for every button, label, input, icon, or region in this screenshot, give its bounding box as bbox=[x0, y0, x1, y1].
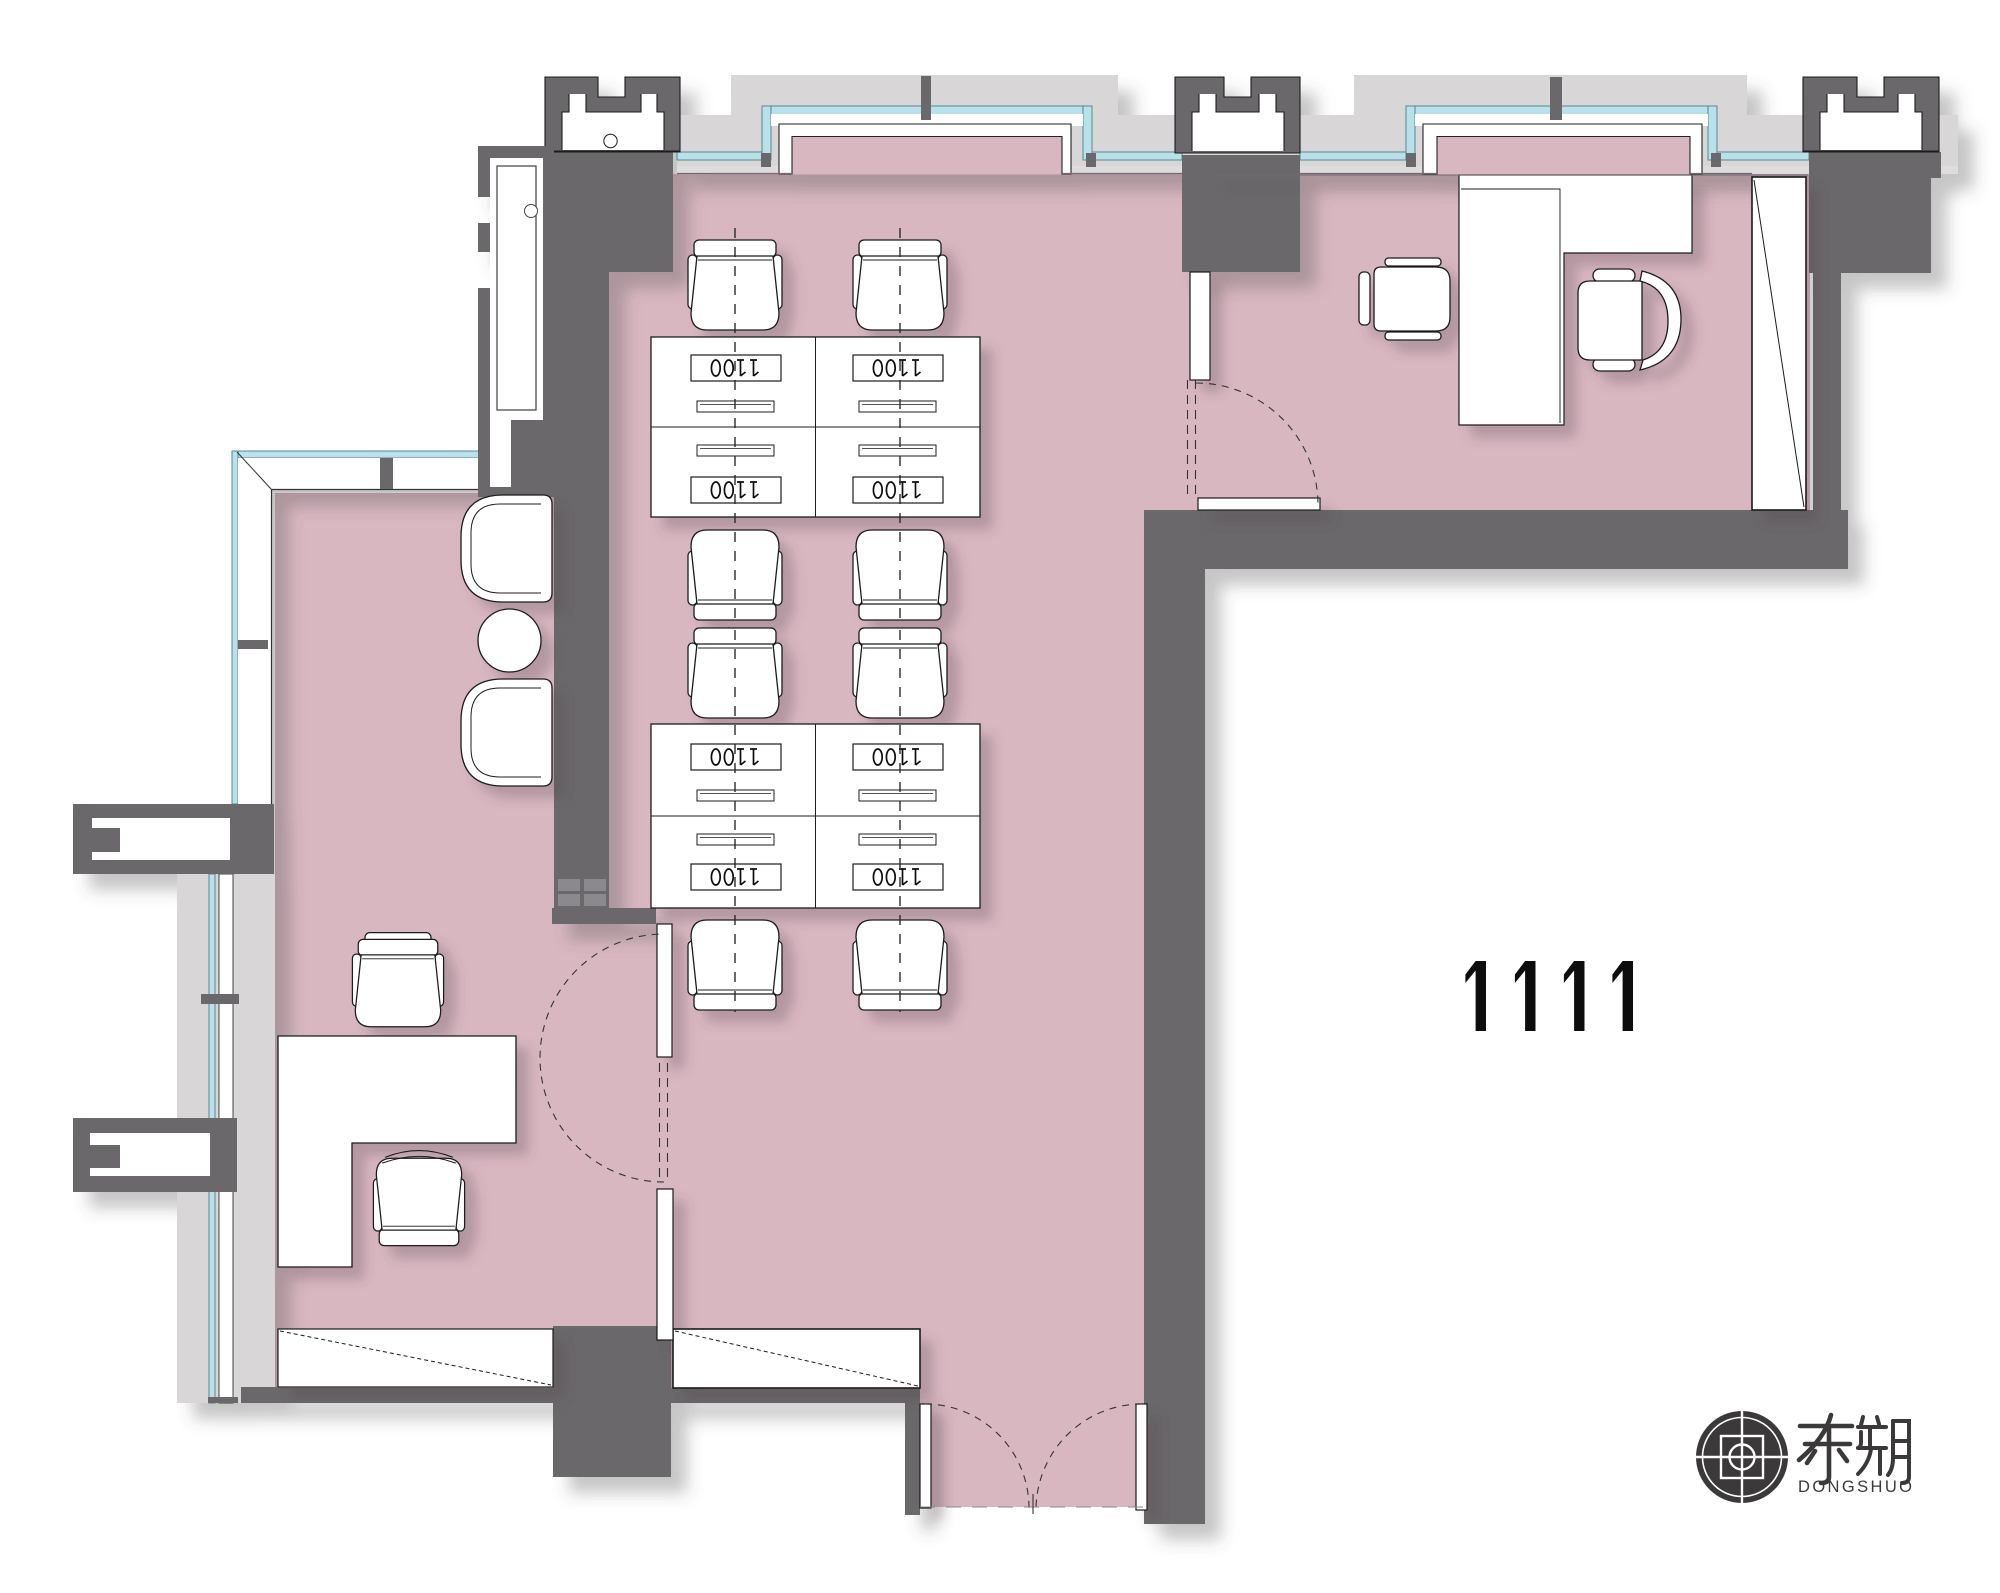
svg-text:DONGSHUO: DONGSHUO bbox=[1798, 1478, 1914, 1496]
